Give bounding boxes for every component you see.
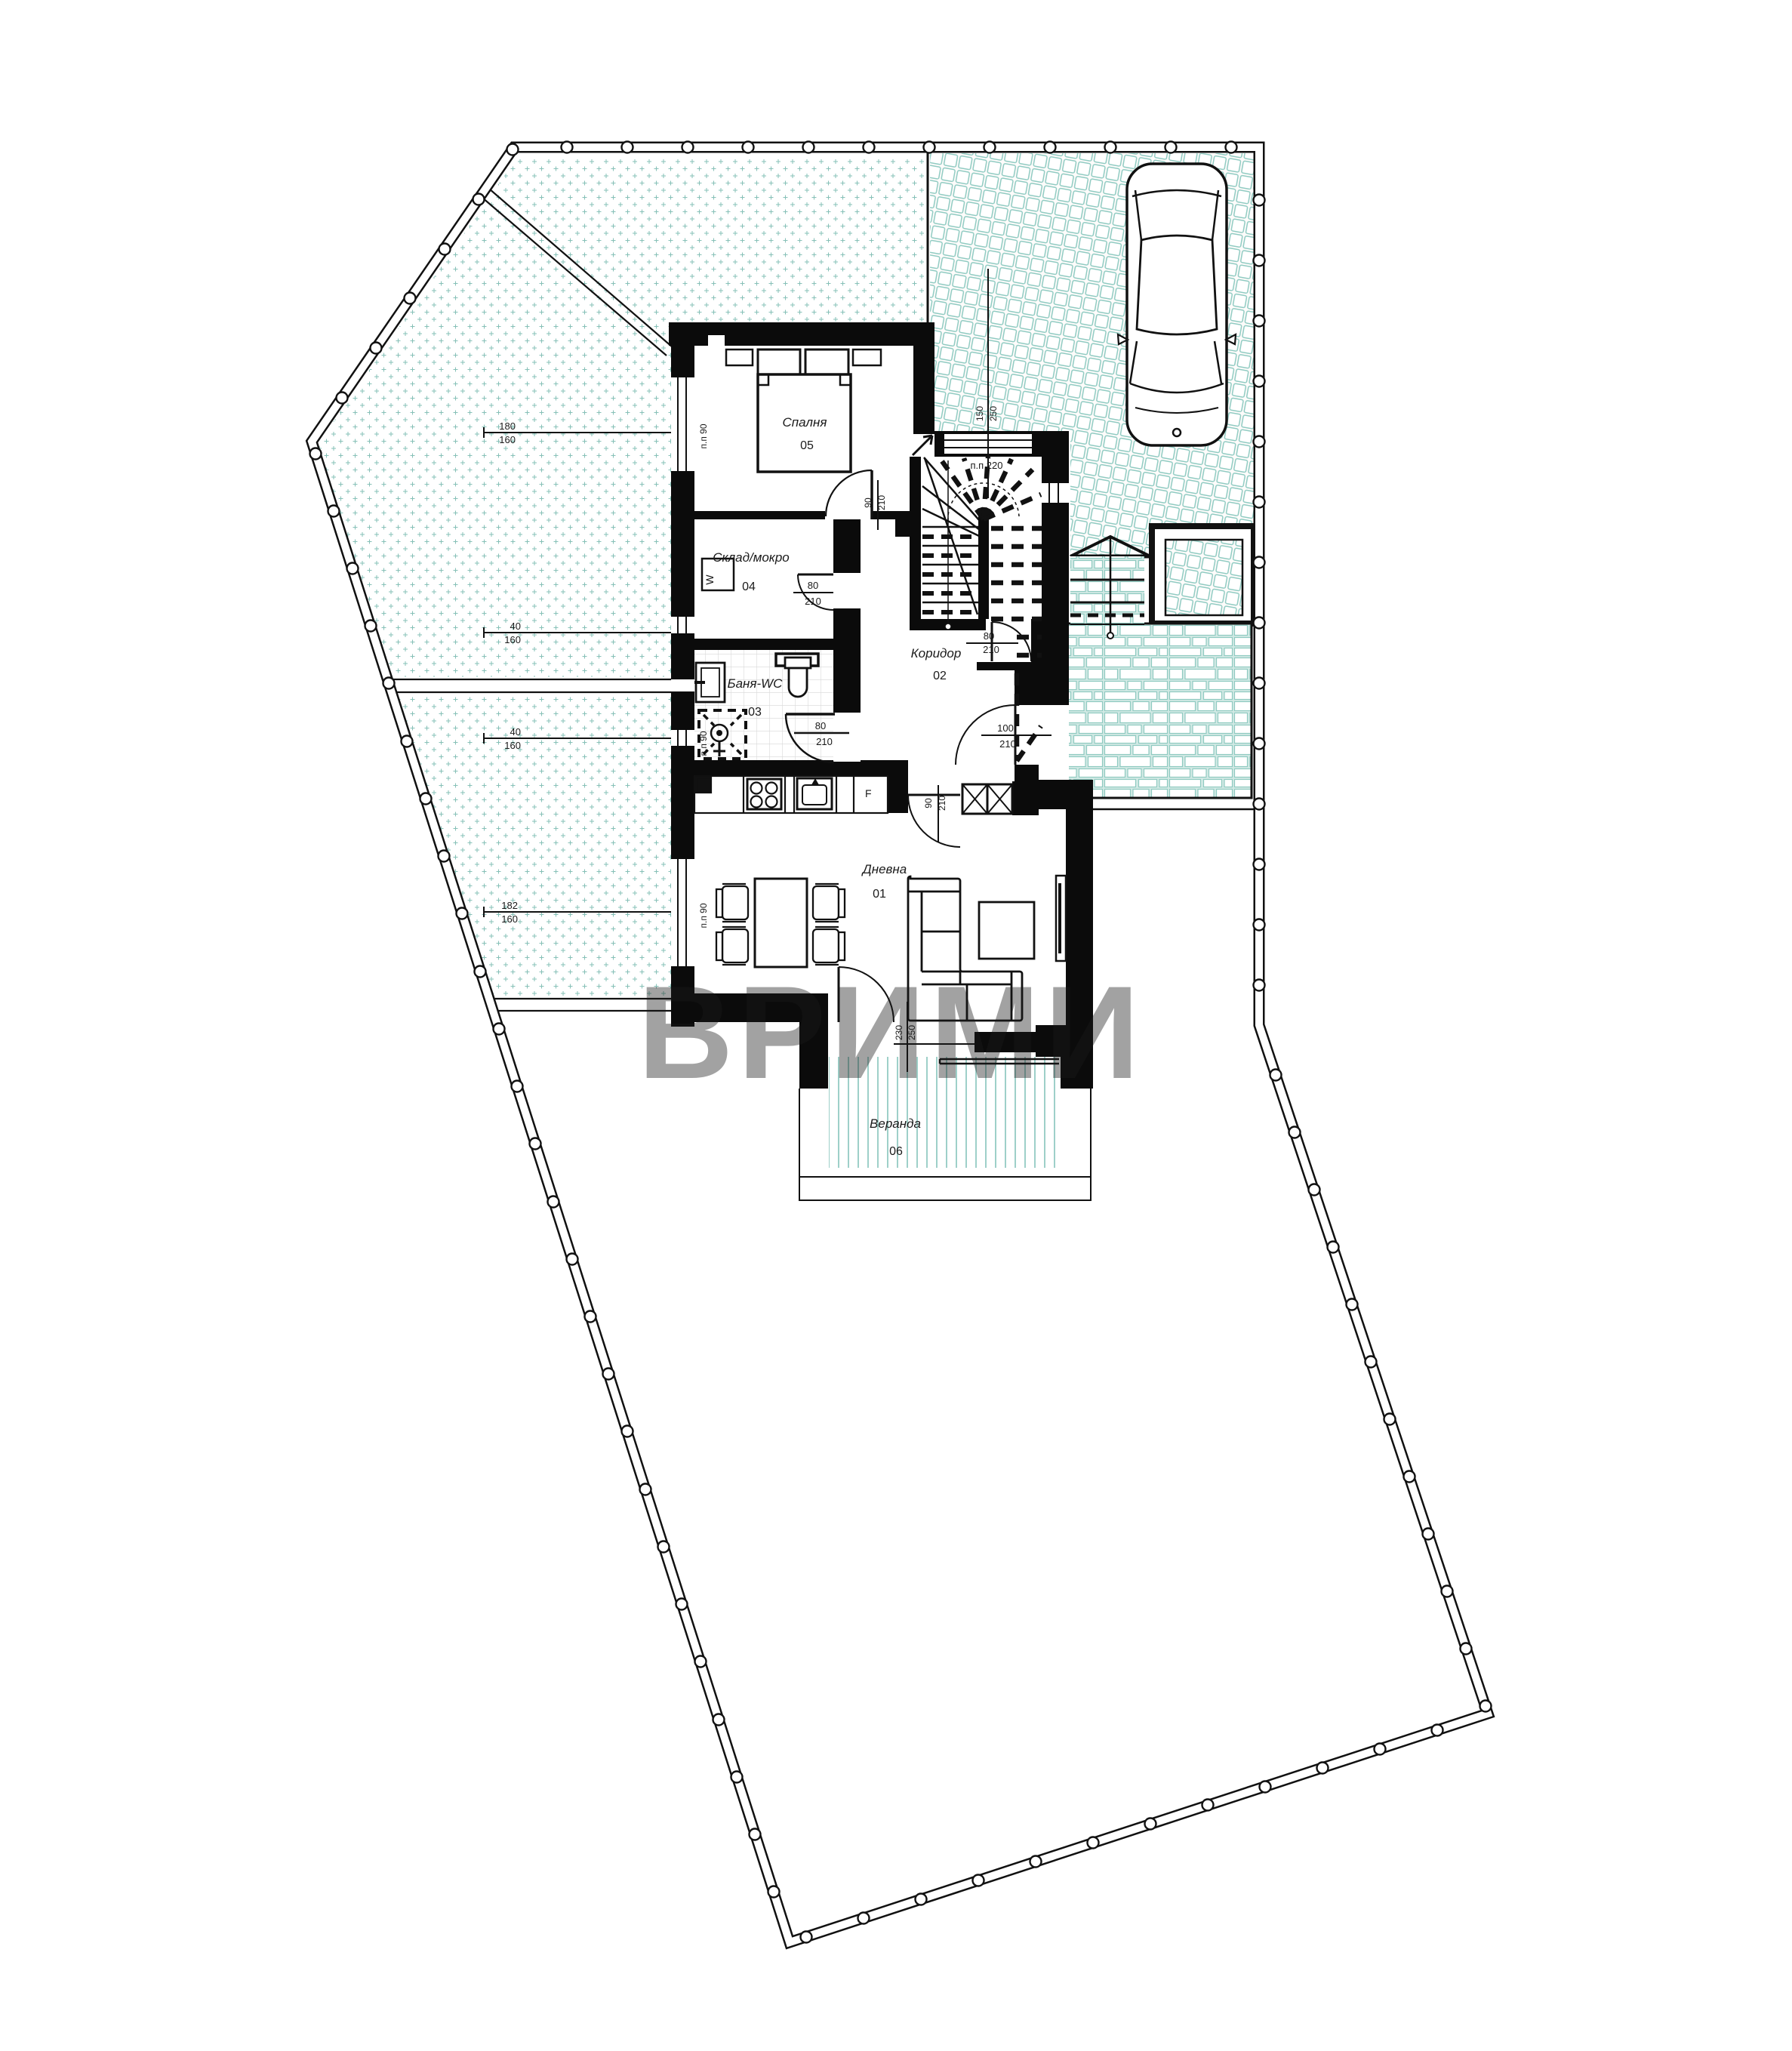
- svg-text:160: 160: [499, 434, 516, 445]
- svg-text:Веранда: Веранда: [870, 1116, 921, 1131]
- svg-text:250: 250: [988, 406, 999, 421]
- svg-text:06: 06: [889, 1145, 903, 1158]
- svg-text:40: 40: [510, 726, 521, 738]
- svg-text:210: 210: [983, 644, 999, 655]
- svg-text:ВРИМИ: ВРИМИ: [638, 959, 1144, 1107]
- svg-text:182: 182: [501, 900, 518, 911]
- svg-text:90: 90: [863, 497, 873, 508]
- svg-text:210: 210: [816, 736, 833, 747]
- svg-text:Дневна: Дневна: [861, 862, 907, 876]
- svg-text:п.п 90: п.п 90: [698, 423, 709, 448]
- svg-text:01: 01: [873, 888, 886, 901]
- svg-text:F: F: [865, 787, 872, 799]
- svg-text:W: W: [704, 574, 716, 585]
- svg-text:Баня-WC: Баня-WC: [728, 676, 784, 691]
- svg-text:03: 03: [748, 706, 762, 719]
- svg-text:160: 160: [504, 634, 521, 645]
- svg-text:80: 80: [808, 580, 818, 591]
- svg-text:210: 210: [937, 796, 947, 811]
- svg-text:210: 210: [876, 495, 887, 510]
- svg-text:Склад/мокро: Склад/мокро: [713, 550, 790, 565]
- svg-text:160: 160: [501, 913, 518, 925]
- svg-text:150: 150: [975, 406, 985, 421]
- svg-text:02: 02: [933, 670, 947, 682]
- svg-text:Коридор: Коридор: [911, 646, 962, 661]
- svg-text:04: 04: [742, 581, 756, 593]
- svg-text:100: 100: [997, 722, 1014, 734]
- svg-text:210: 210: [999, 738, 1016, 750]
- svg-text:п.п 90: п.п 90: [698, 731, 709, 756]
- svg-text:180: 180: [499, 420, 516, 432]
- svg-text:05: 05: [800, 439, 814, 452]
- svg-text:80: 80: [815, 720, 826, 731]
- svg-text:80: 80: [984, 630, 994, 642]
- svg-text:210: 210: [805, 596, 821, 607]
- svg-text:п.п 90: п.п 90: [698, 903, 709, 928]
- svg-text:п.п 220: п.п 220: [971, 460, 1003, 471]
- svg-text:40: 40: [510, 621, 521, 632]
- svg-text:90: 90: [923, 798, 934, 808]
- svg-text:Спалня: Спалня: [783, 415, 827, 430]
- svg-text:160: 160: [504, 740, 521, 751]
